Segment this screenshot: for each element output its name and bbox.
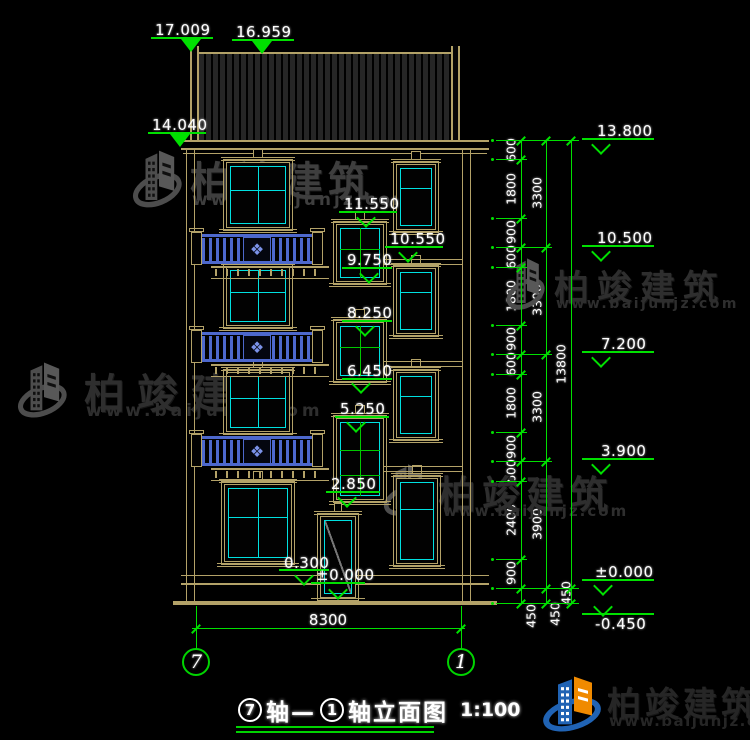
dim-chain-line bbox=[571, 140, 572, 603]
eave-band bbox=[181, 140, 489, 150]
window-glazing bbox=[400, 376, 432, 434]
window-keystone bbox=[253, 149, 263, 158]
window-sill bbox=[389, 565, 445, 569]
belt-course-band bbox=[384, 259, 462, 265]
dim-extension-line bbox=[496, 603, 579, 604]
watermark-url: www.baijunjz.com bbox=[556, 296, 739, 312]
dim-extension-dot bbox=[491, 431, 494, 434]
dim-label: 450 bbox=[524, 604, 539, 628]
dim-label: 1800 bbox=[504, 173, 519, 205]
wall-right-edge bbox=[462, 150, 471, 602]
dim-extension-dot bbox=[491, 373, 494, 376]
axis-bubble-7: 7 bbox=[182, 648, 210, 676]
dim-label: 450 bbox=[548, 602, 563, 626]
balcony-ornament-icon: ❖ bbox=[250, 442, 264, 461]
balcony-ornament-panel: ❖ bbox=[243, 439, 271, 464]
balcony-post bbox=[191, 434, 202, 467]
eave-band-lower-line bbox=[183, 150, 487, 154]
axis-number: 7 bbox=[190, 651, 202, 673]
window-mullion bbox=[230, 292, 286, 293]
balcony-bottom-rail bbox=[202, 359, 312, 362]
dim-extension-dot bbox=[491, 558, 494, 561]
dim-extension-dot bbox=[491, 460, 494, 463]
window-mullion bbox=[400, 292, 432, 293]
dim-extension-dot bbox=[491, 246, 494, 249]
window-mullion bbox=[230, 190, 286, 191]
window-mullion bbox=[230, 398, 286, 399]
dim-extension-dot bbox=[491, 139, 494, 142]
dim-extension-dot bbox=[491, 266, 494, 269]
window-mullion bbox=[340, 249, 380, 250]
window-mullion bbox=[258, 376, 259, 428]
baijunjz-logo-icon bbox=[132, 147, 186, 211]
title-axis-circle-7: 7 bbox=[238, 698, 262, 722]
belt-course-band bbox=[384, 466, 462, 472]
title-text: 轴立面图 bbox=[348, 693, 448, 727]
title-underline bbox=[236, 731, 434, 733]
cad-elevation-drawing: 柏竣建筑 www.baijunjz.com 柏竣建筑 www.baijunjz.… bbox=[0, 0, 750, 740]
dim-extension-dot bbox=[491, 324, 494, 327]
balcony-ornament-panel: ❖ bbox=[243, 335, 271, 360]
corbel-ticks bbox=[215, 471, 325, 478]
dim-label: 13800 bbox=[554, 344, 569, 384]
corbel-ticks bbox=[215, 367, 325, 374]
window-sill bbox=[389, 439, 443, 443]
balcony-ornament-panel: ❖ bbox=[243, 237, 271, 262]
baijunjz-logo-icon bbox=[17, 359, 71, 421]
title-text: 轴— bbox=[266, 693, 316, 727]
dim-extension-dot bbox=[491, 602, 494, 605]
belt-course-band bbox=[384, 361, 462, 367]
balcony-post bbox=[312, 232, 323, 265]
balcony-post bbox=[312, 434, 323, 467]
logo-url: www.baijunjz.com bbox=[609, 712, 750, 730]
door-keystone bbox=[334, 503, 342, 512]
window-mullion bbox=[228, 517, 288, 518]
dim-extension-dot bbox=[491, 217, 494, 220]
dim-chain-line bbox=[546, 140, 547, 603]
window-mullion bbox=[258, 166, 259, 224]
dim-extension-dot bbox=[491, 587, 494, 590]
wall-left-edge bbox=[186, 150, 195, 602]
elevation-value: -0.450 bbox=[595, 615, 646, 633]
dim-label: 1800 bbox=[504, 387, 519, 419]
dim-extension-line bbox=[196, 606, 197, 650]
window-mullion bbox=[258, 488, 259, 558]
dim-extension-line bbox=[496, 588, 579, 589]
window-glazing bbox=[400, 482, 434, 560]
balcony-bottom-rail bbox=[202, 463, 312, 466]
dim-extension-dot bbox=[491, 353, 494, 356]
axis-number: 1 bbox=[455, 651, 467, 673]
window-sill bbox=[329, 283, 391, 287]
window-sill bbox=[389, 335, 443, 339]
balcony-post bbox=[312, 330, 323, 363]
dim-extension-dot bbox=[491, 480, 494, 483]
roof-tile-hatch bbox=[199, 52, 451, 142]
balcony-ornament-icon: ❖ bbox=[250, 338, 264, 357]
window-mullion bbox=[400, 188, 432, 189]
window-mullion bbox=[400, 396, 432, 397]
baijunjz-logo-icon bbox=[506, 255, 548, 313]
window-mullion bbox=[400, 509, 434, 510]
dim-label: 900 bbox=[504, 435, 519, 459]
window-sill bbox=[219, 229, 297, 233]
drawing-title: 7 轴— 1 轴立面图 1:100 bbox=[238, 693, 520, 727]
window-glazing bbox=[400, 272, 432, 330]
baijunjz-logo-icon bbox=[542, 673, 606, 735]
dim-width-total: 8300 bbox=[309, 611, 347, 629]
roof-post-right bbox=[451, 46, 460, 143]
dim-extension-line bbox=[496, 140, 579, 141]
title-scale: 1:100 bbox=[460, 699, 520, 721]
corbel-ticks bbox=[215, 269, 325, 276]
window-mullion bbox=[340, 347, 380, 348]
window-mullion bbox=[340, 450, 380, 451]
window-glazing bbox=[400, 168, 432, 226]
dim-extension-dot bbox=[491, 158, 494, 161]
balcony-post bbox=[191, 330, 202, 363]
axis-bubble-1: 1 bbox=[447, 648, 475, 676]
dim-label: 3300 bbox=[530, 391, 545, 423]
window-keystone bbox=[411, 151, 421, 160]
title-underline bbox=[236, 726, 434, 728]
balcony-post bbox=[191, 232, 202, 265]
window-sill bbox=[219, 327, 297, 331]
dim-extension-line bbox=[461, 606, 462, 650]
dim-label: 3300 bbox=[530, 177, 545, 209]
dim-label: 600 bbox=[504, 352, 519, 376]
balcony-bottom-rail bbox=[202, 261, 312, 264]
title-axis-circle-1: 1 bbox=[320, 698, 344, 722]
balcony-ornament-icon: ❖ bbox=[250, 240, 264, 259]
